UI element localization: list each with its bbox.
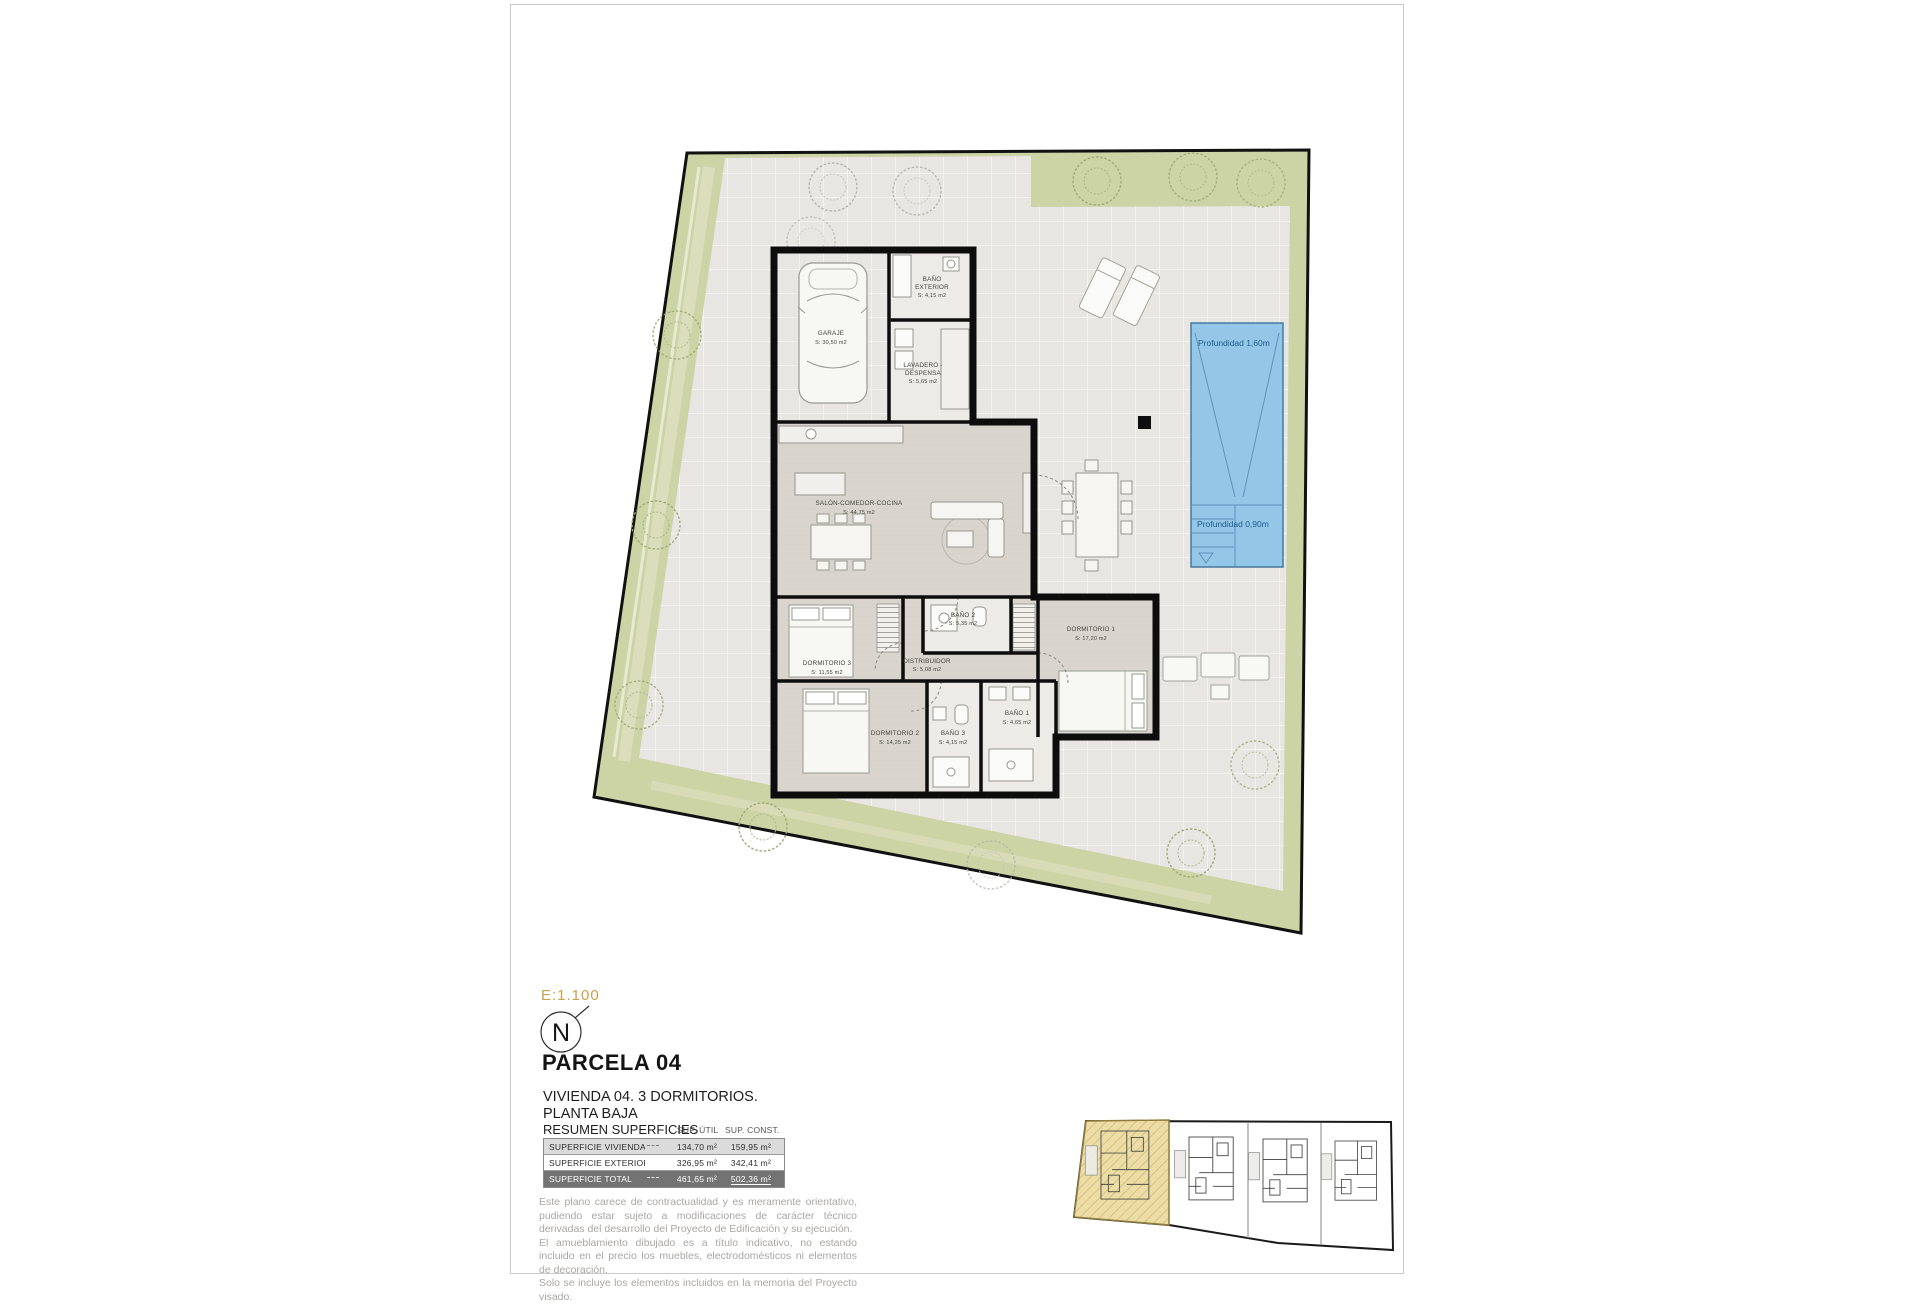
legal-disclaimer: Este plano carece de contractualidad y e…	[539, 1196, 857, 1304]
wardrobe-icon	[877, 604, 899, 652]
pool: Profundidad 1,60m Profundidad 0,90m	[1191, 323, 1283, 567]
room-label-salon: SALÓN-COMEDOR-COCINA	[816, 498, 904, 507]
surface-summary-table: SUPERFICIE VIVIENDA 134,70 m² 159,95 m² …	[543, 1138, 785, 1188]
svg-text:S: 5,08 m2: S: 5,08 m2	[913, 667, 942, 673]
parcel-title: PARCELA 04	[542, 1050, 681, 1076]
disclaimer-paragraph: El amueblamiento dibujado es a título in…	[539, 1237, 857, 1278]
svg-text:S: 11,55 m2: S: 11,55 m2	[811, 670, 842, 676]
plan-subtitle: VIVIENDA 04. 3 DORMITORIOS. PLANTA BAJA	[543, 1089, 758, 1123]
row-label: SUPERFICIE EXTERIOR	[549, 1158, 645, 1168]
column-header-util: SUP. ÚTIL	[677, 1125, 718, 1135]
room-label-garaje: GARAJE	[818, 330, 844, 337]
svg-text:S: 4,15 m2: S: 4,15 m2	[918, 293, 947, 299]
pool-depth-deep-label: Profundidad 1,60m	[1198, 338, 1270, 348]
svg-text:S: 17,20 m2: S: 17,20 m2	[1075, 636, 1107, 642]
const-value: 502,36 m²	[717, 1174, 779, 1184]
summary-header: RESUMEN SUPERFICIES SUP. ÚTIL SUP. CONST…	[543, 1122, 783, 1137]
const-value: 159,95 m²	[717, 1142, 779, 1152]
leader-line	[647, 1144, 659, 1146]
util-value: 461,65 m²	[663, 1174, 717, 1184]
subtitle-line1: VIVIENDA 04. 3 DORMITORIOS.	[543, 1089, 758, 1106]
room-label-bano1: BAÑO 1	[1005, 708, 1030, 717]
site-plot: Profundidad 1,60m Profundidad 0,90m	[594, 150, 1309, 933]
sheet-page: Profundidad 1,60m Profundidad 0,90m	[510, 4, 1404, 1274]
svg-text:DESPENSA: DESPENSA	[905, 370, 941, 377]
leader-line	[647, 1176, 659, 1178]
dining-table-icon	[811, 514, 871, 570]
row-label: SUPERFICIE VIVIENDA	[549, 1142, 645, 1152]
svg-text:S: 5,35 m2: S: 5,35 m2	[949, 621, 978, 627]
table-row-total: SUPERFICIE TOTAL 461,65 m² 502,36 m²	[544, 1171, 784, 1187]
util-value: 134,70 m²	[663, 1142, 717, 1152]
room-label-dormitorio3: DORMITORIO 3	[803, 660, 852, 667]
room-label-dormitorio1: DORMITORIO 1	[1067, 626, 1116, 633]
svg-text:S: 4,65 m2: S: 4,65 m2	[1003, 720, 1032, 726]
disclaimer-paragraph: Solo se incluye los elementos incluidos …	[539, 1277, 857, 1304]
column-header-const: SUP. CONST.	[725, 1125, 779, 1135]
svg-text:S: 5,65 m2: S: 5,65 m2	[909, 379, 938, 385]
room-label-distribuidor: DISTRIBUIDOR	[903, 658, 951, 665]
pool-depth-shallow-label: Profundidad 0,90m	[1197, 519, 1269, 529]
row-label: SUPERFICIE TOTAL	[549, 1174, 645, 1184]
bed-icon	[1059, 671, 1147, 731]
table-row: SUPERFICIE EXTERIOR 326,95 m² 342,41 m²	[544, 1155, 784, 1171]
svg-text:S: 44,75 m2: S: 44,75 m2	[843, 510, 875, 516]
const-value: 342,41 m²	[717, 1158, 779, 1168]
terrace-pillar	[1138, 416, 1151, 429]
north-needle	[575, 1006, 589, 1018]
subtitle-line2: PLANTA BAJA	[543, 1106, 758, 1123]
leader-line	[647, 1160, 659, 1161]
room-label-bano3: BAÑO 3	[941, 728, 966, 737]
room-label-bano-exterior: BAÑO	[923, 274, 942, 283]
svg-text:S: 4,15 m2: S: 4,15 m2	[939, 740, 968, 746]
room-label-bano2: BAÑO 2	[951, 610, 976, 619]
util-value: 326,95 m²	[663, 1158, 717, 1168]
north-letter: N	[552, 1019, 570, 1047]
room-label-dormitorio2: DORMITORIO 2	[871, 730, 920, 737]
disclaimer-paragraph: Este plano carece de contractualidad y e…	[539, 1196, 857, 1237]
scale-label: E:1.100	[541, 987, 600, 1004]
svg-text:S: 30,50 m2: S: 30,50 m2	[815, 340, 847, 346]
summary-title: RESUMEN SUPERFICIES	[543, 1122, 698, 1137]
table-row: SUPERFICIE VIVIENDA 134,70 m² 159,95 m²	[544, 1139, 784, 1155]
location-key-map	[1074, 1120, 1393, 1250]
bed-icon	[803, 689, 869, 773]
svg-text:EXTERIOR: EXTERIOR	[915, 284, 949, 291]
floor-plan-drawing: Profundidad 1,60m Profundidad 0,90m	[511, 5, 1405, 1275]
room-label-lavadero: LAVADERO -	[903, 362, 942, 369]
svg-text:S: 14,25 m2: S: 14,25 m2	[879, 740, 911, 746]
wardrobe-icon	[1013, 604, 1035, 650]
